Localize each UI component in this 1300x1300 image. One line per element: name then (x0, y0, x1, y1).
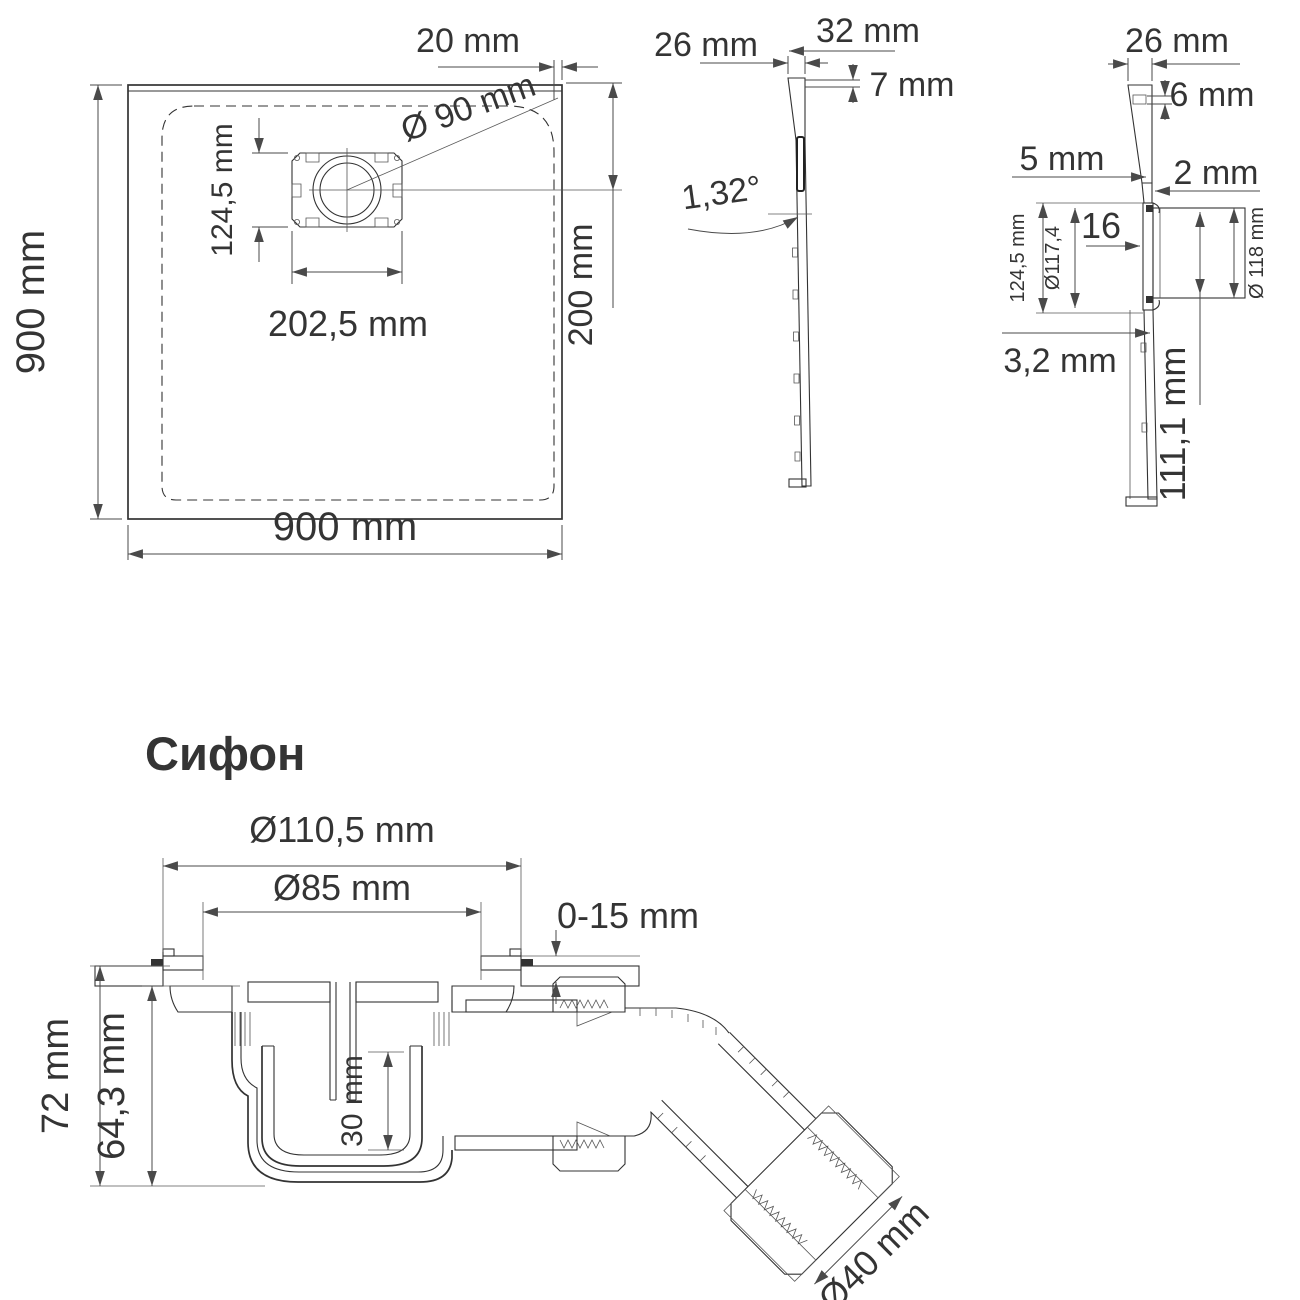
dim-label-drainprofile-edge: 26 mm (1125, 22, 1229, 60)
dim-tray-width: 900 mm (128, 505, 562, 560)
dim-label-wall-lower: 2 mm (1174, 154, 1259, 192)
siphon-clamp-right (452, 986, 514, 1012)
dim-cup-depth: 30 mm (336, 1052, 404, 1150)
siphon-rim-left (163, 949, 174, 956)
coupling-band-bottom (724, 1189, 816, 1281)
siphon-heading: Сифон (145, 727, 305, 780)
profile-edge-wedge (788, 78, 805, 140)
outlet-wall-bottom (455, 1136, 577, 1150)
siphon-rim-right (510, 949, 521, 956)
siphon-deck-right (356, 982, 438, 1002)
dim-label-tray-width: 900 mm (273, 505, 418, 549)
siphon-thread-right (434, 1012, 449, 1046)
technical-drawing-page: 900 mm 900 mm 20 mm Ø 90 mm 124,5 mm 202… (0, 0, 1300, 1300)
dim-siphon-throat-diameter: Ø85 mm (203, 867, 481, 980)
dim-label-cup-depth: 30 mm (336, 1055, 369, 1147)
outlet-nut-top (553, 977, 625, 1012)
siphon-lip-right (481, 956, 521, 970)
dim-label-profile-lip: 7 mm (870, 66, 955, 104)
dim-flange-inset: 16 (1081, 205, 1140, 246)
drain-profile-flange-hooks (1153, 203, 1159, 310)
pipe-bottom-edge (625, 1112, 651, 1136)
siphon-seal-left (151, 959, 163, 966)
pipe-corrugation-ticks (640, 1008, 716, 1035)
siphon-seal-right (521, 959, 533, 966)
dim-wall-lower: 2 mm (1155, 154, 1260, 192)
dim-label-tray-height: 900 mm (9, 230, 53, 375)
dim-label-total-height: 72 mm (35, 1018, 77, 1134)
dim-drain-box-width: 202,5 mm (268, 231, 428, 344)
dim-label-siphon-flange-diameter: Ø110,5 mm (249, 809, 434, 850)
dim-profile-edge-height: 26 mm (654, 26, 828, 74)
dim-label-drain-box-width: 202,5 mm (268, 303, 428, 344)
dim-label-bottom-thickness: 3,2 mm (1003, 342, 1116, 380)
dim-tray-height: 900 mm (9, 85, 122, 519)
dim-label-profile-slope-angle: 1,32° (679, 169, 763, 218)
dim-adjust-range: 0-15 mm (521, 895, 699, 1004)
dim-label-profile-top-width: 32 mm (816, 12, 920, 50)
drain-profile-seal-bottom (1146, 296, 1153, 303)
drain-profile-flange (1143, 203, 1153, 310)
dim-label-edge-offset: 20 mm (416, 22, 520, 60)
drain-profile-seal-top (1146, 205, 1153, 212)
dim-label-siphon-throat-diameter: Ø85 mm (273, 867, 411, 908)
outlet-cone-bottom (577, 1122, 610, 1136)
siphon-lip-left (163, 956, 203, 970)
dim-drainprofile-lip: 6 mm (1147, 76, 1255, 120)
drain-profile-wedge (1128, 85, 1152, 183)
dim-profile-lip: 7 mm (805, 64, 955, 104)
dim-profile-slope-angle: 1,32° (679, 169, 812, 234)
outlet-elbow: Ø40 mm (636, 1018, 941, 1300)
coupling-band-top (807, 1106, 899, 1198)
dim-drainprofile-edge: 26 mm (1108, 22, 1240, 81)
dim-drain-center-offset: 200 mm (562, 83, 622, 346)
outlet-cone-top (577, 1012, 612, 1026)
dim-label-drain-box-height: 124,5 mm (206, 123, 239, 256)
dim-body-height: 111,1 mm (1152, 212, 1200, 501)
dim-siphon-body-height: 64,3 mm (91, 986, 240, 1186)
dim-flange-diameter: Ø117,4 (1042, 208, 1075, 308)
drain-box (292, 148, 622, 232)
outlet-nut-bottom (553, 1136, 625, 1171)
drain-profile-view: 26 mm 6 mm 5 mm 2 mm 16 124,5 mm Ø117,4 (1002, 22, 1268, 506)
dim-profile-top-width: 32 mm (789, 12, 920, 51)
side-profile-view: 26 mm 32 mm 7 mm 1,32° (654, 12, 954, 487)
elbow-tube-walls (650, 1032, 815, 1197)
dim-drain-box-height: 124,5 mm (206, 118, 288, 262)
dim-label-siphon-body-height: 64,3 mm (91, 1012, 133, 1160)
siphon-thread-left (235, 1012, 250, 1046)
dim-label-drain-center-offset: 200 mm (562, 224, 600, 347)
dim-label-body-diameter: Ø 118 mm (1246, 207, 1268, 299)
tray-sheet-left (95, 966, 163, 986)
siphon-view: Ø40 mm Ø110,5 mm Ø85 mm 0-15 mm 72 mm (35, 809, 942, 1300)
dim-label-wall-upper: 5 mm (1020, 140, 1105, 178)
dim-label-profile-edge-height: 26 mm (654, 26, 758, 64)
dim-label-flange-diameter: Ø117,4 (1042, 226, 1064, 290)
elbow-ticks (657, 1039, 789, 1171)
tray-outline (128, 85, 562, 519)
outlet-nut-top-thread (560, 1000, 608, 1008)
dim-label-drainprofile-lip: 6 mm (1170, 76, 1255, 114)
dim-label-flange-inset: 16 (1081, 205, 1121, 246)
pipe-top-edge (625, 1008, 729, 1033)
dim-wall-upper: 5 mm (1012, 140, 1146, 178)
drawing-canvas: 900 mm 900 mm 20 mm Ø 90 mm 124,5 mm 202… (0, 0, 1300, 1300)
tray-sheet-right (521, 966, 639, 986)
dim-outlet-diameter: Ø40 mm (809, 1191, 936, 1300)
tray-top-view: 900 mm 900 mm 20 mm Ø 90 mm 124,5 mm 202… (9, 22, 622, 560)
outlet-nut-bottom-thread (560, 1140, 604, 1148)
dim-body-diameter: Ø 118 mm (1234, 207, 1268, 299)
dim-label-body-height: 111,1 mm (1152, 347, 1193, 502)
dim-total-height: 72 mm (35, 966, 265, 1186)
drain-centerlines (309, 148, 622, 232)
outlet-wall-top (466, 1000, 577, 1012)
dim-bottom-thickness: 3,2 mm (1002, 333, 1150, 380)
coupling-thread-top (807, 1132, 864, 1189)
drain-profile-neck (1142, 183, 1152, 203)
dim-label-box-height-right: 124,5 mm (1007, 214, 1029, 303)
dim-label-adjust-range: 0-15 mm (557, 895, 699, 936)
coupling-thread-bottom (750, 1189, 807, 1246)
drain-body-section (1153, 208, 1245, 298)
siphon-clamp-left (170, 986, 232, 1012)
drain-profile-top-groove (1133, 95, 1146, 104)
siphon-deck-left (248, 982, 330, 1002)
profile-drain-flange (797, 137, 804, 191)
